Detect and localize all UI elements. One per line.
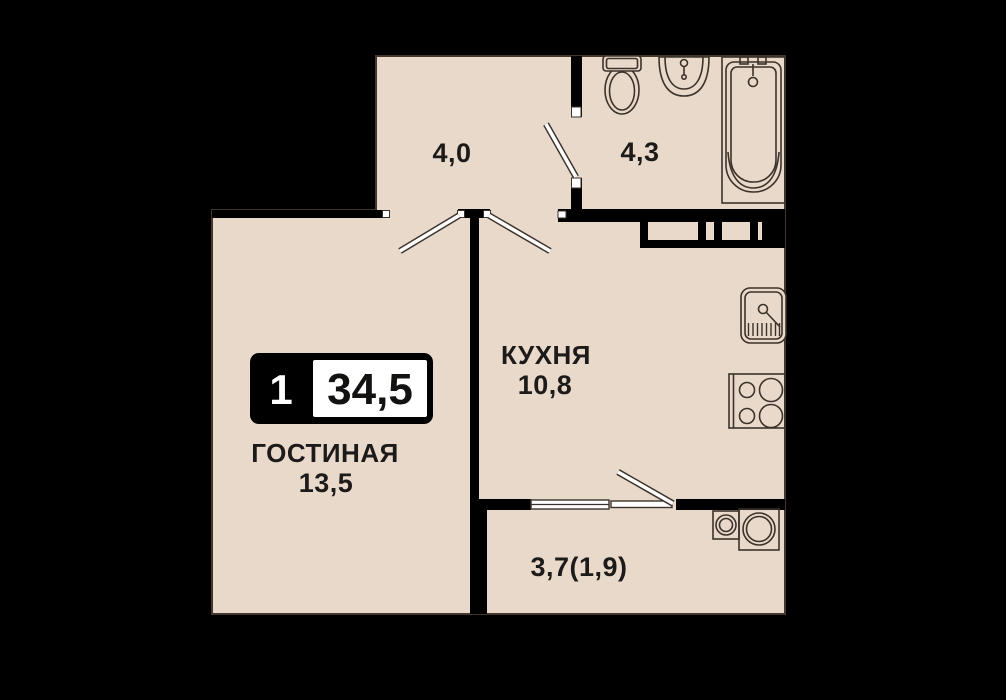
floor-plan: 1 34,5 4,0 4,3 КУХНЯ 10,8 ГОСТИНАЯ 13,5 … xyxy=(0,0,1006,700)
floor-plan-page: 1 34,5 4,0 4,3 КУХНЯ 10,8 ГОСТИНАЯ 13,5 … xyxy=(0,0,1006,700)
kitchen-sink-icon xyxy=(741,288,786,343)
room-area-balcony: 3,7(1,9) xyxy=(530,552,627,582)
room-area-living: 13,5 xyxy=(299,468,354,498)
room-area-bathroom: 4,3 xyxy=(620,137,659,167)
apartment-floor xyxy=(212,56,785,614)
room-label-living: ГОСТИНАЯ xyxy=(251,438,399,468)
rooms-count: 1 xyxy=(269,366,292,413)
room-label-kitchen: КУХНЯ xyxy=(501,340,591,370)
balcony-window xyxy=(531,500,609,509)
area-badge: 1 34,5 xyxy=(250,353,433,424)
room-area-kitchen: 10,8 xyxy=(518,370,573,400)
room-area-hallway: 4,0 xyxy=(432,138,471,168)
total-area: 34,5 xyxy=(327,365,413,414)
balcony-door-sill xyxy=(611,501,672,508)
